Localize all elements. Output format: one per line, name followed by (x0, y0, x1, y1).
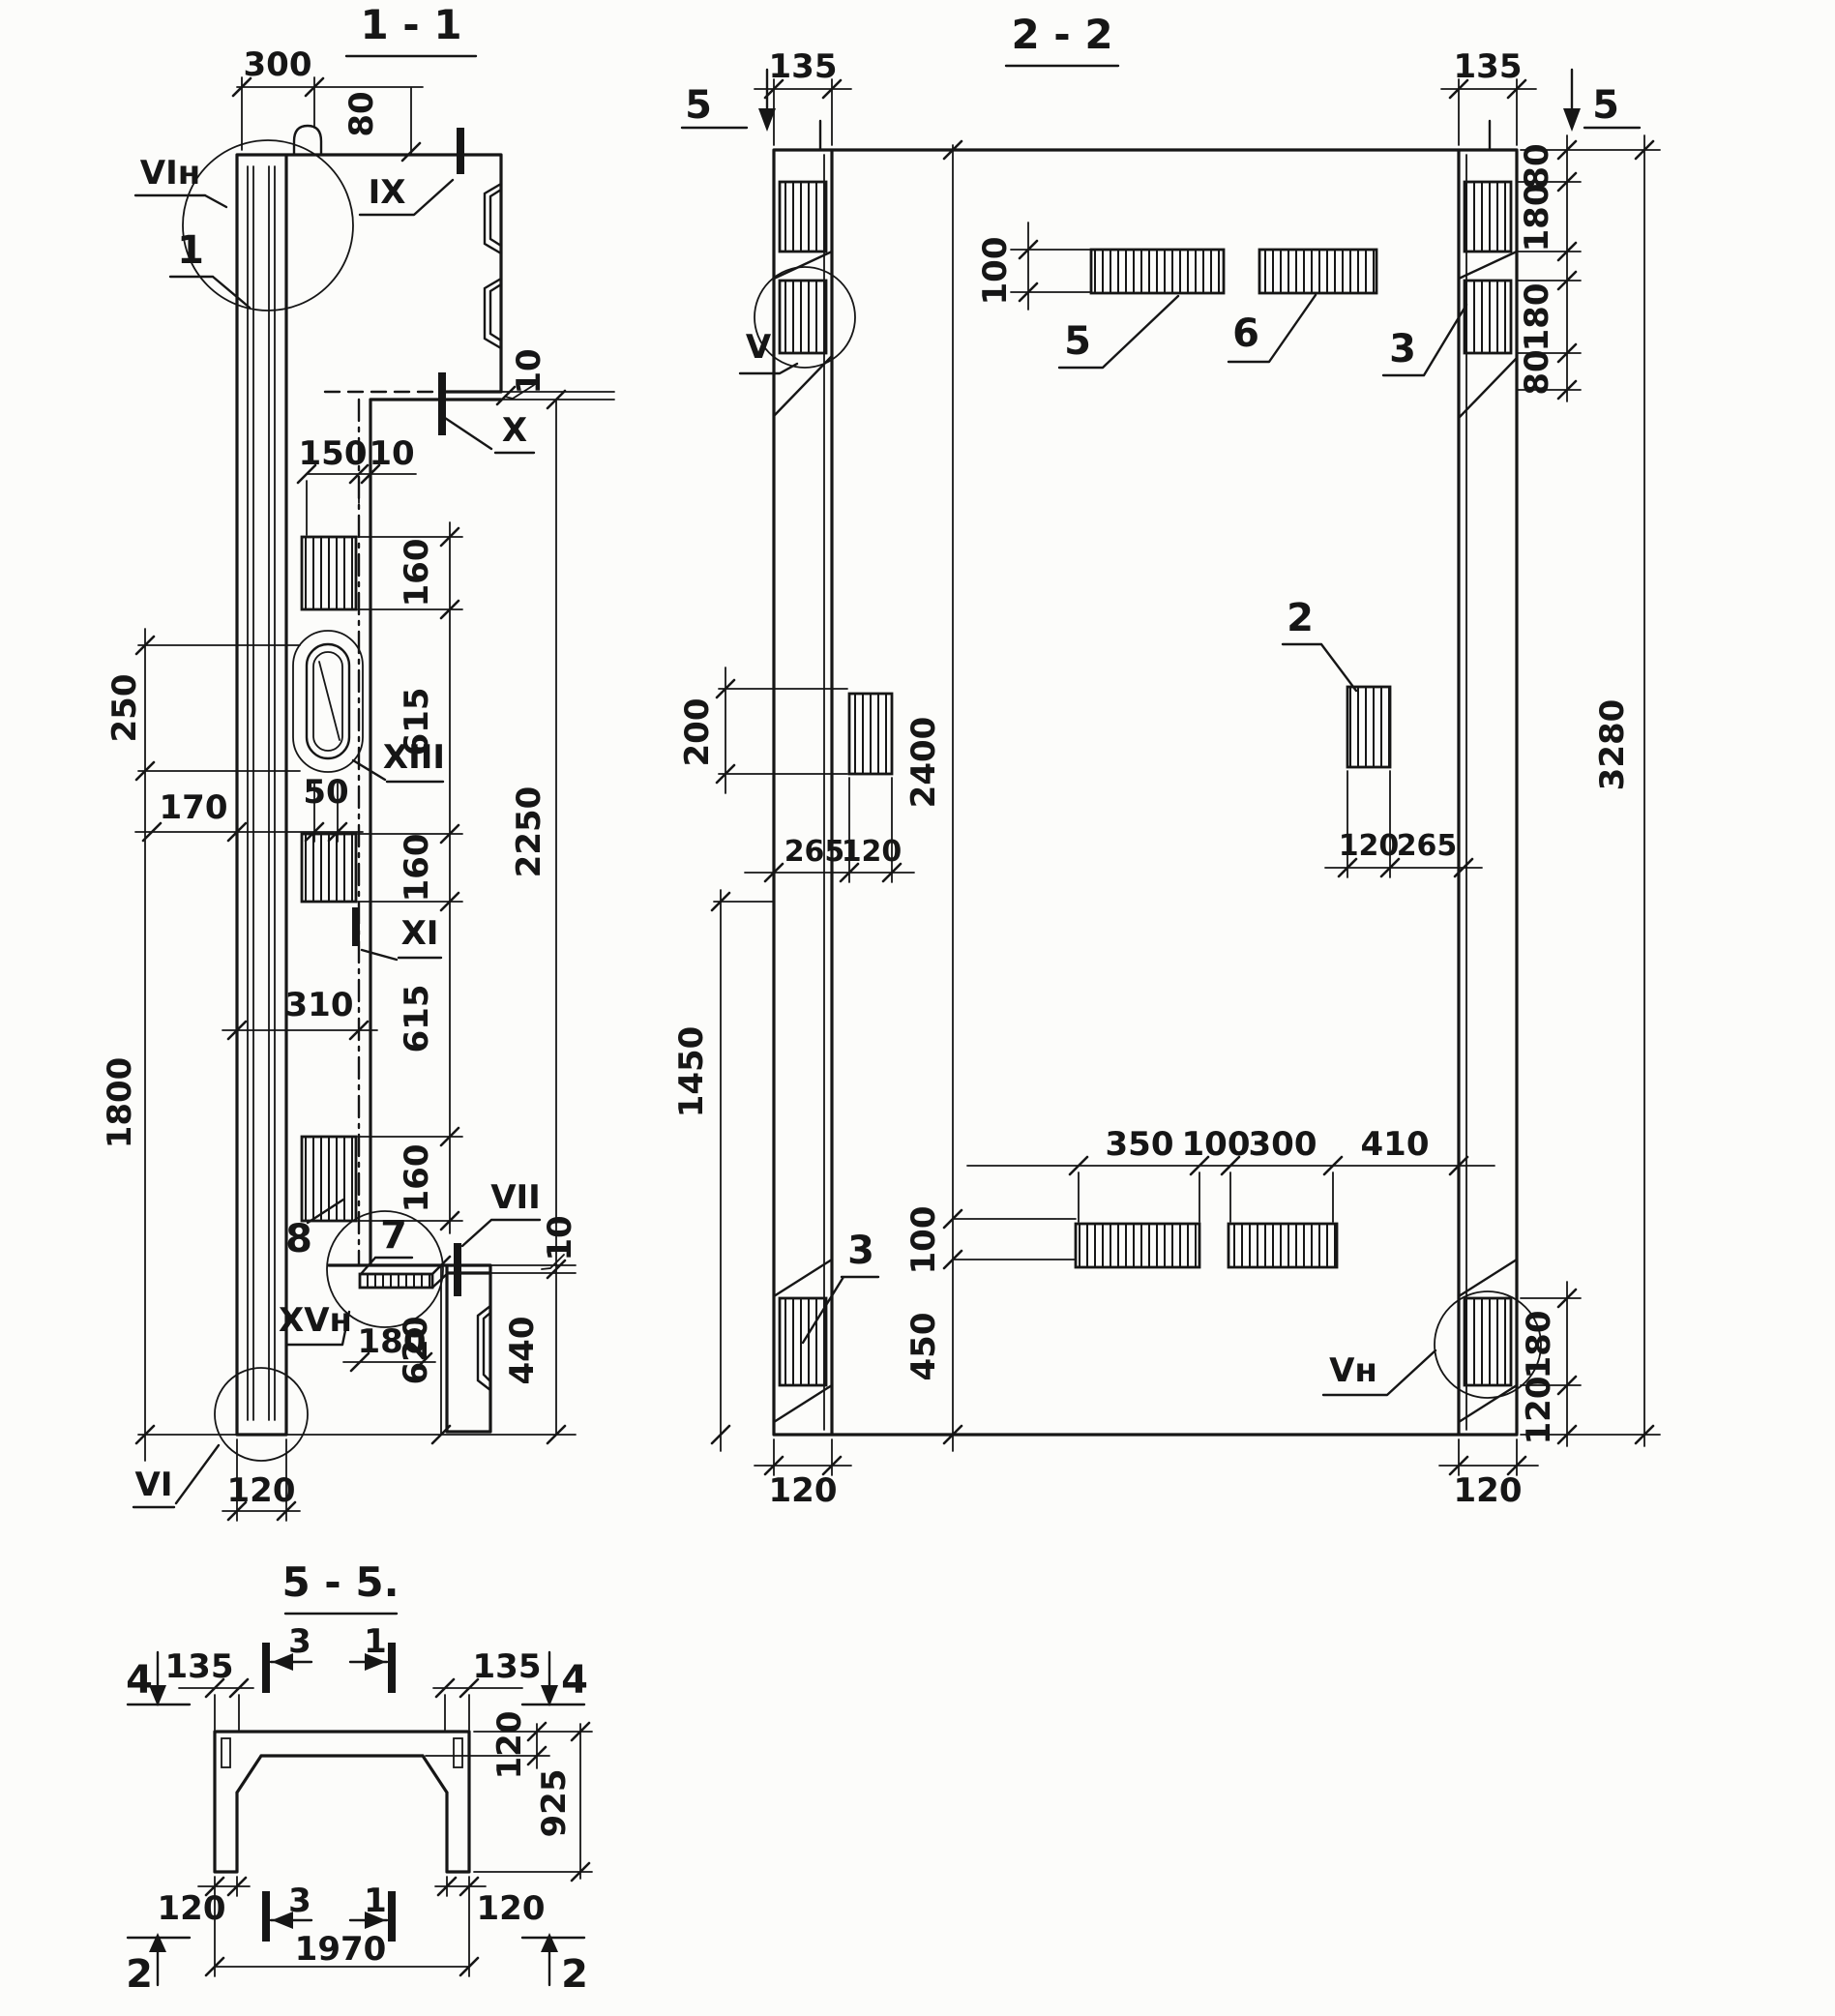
dim-2400: 2400 (904, 717, 943, 809)
dim-410: 410 (1361, 1125, 1430, 1164)
embed-plate (1347, 687, 1390, 767)
corner-embed (222, 1738, 230, 1767)
dim-440: 440 (503, 1317, 542, 1385)
dim-925: 925 (535, 1769, 574, 1838)
detail-circle-VI (215, 1368, 308, 1461)
dim-180: 180 (1518, 283, 1556, 352)
dim-620: 620 (397, 1317, 435, 1385)
label-6: 6 (1232, 311, 1259, 356)
rebar-ends (820, 121, 1490, 150)
cut-label-3: 3 (288, 1882, 311, 1920)
label-XI: XI (401, 914, 439, 953)
dim-350: 350 (1106, 1125, 1174, 1164)
label-VIn: VIн (140, 154, 200, 193)
cut-mark-2-left: 2 (126, 1933, 190, 1997)
dim-170: 170 (160, 788, 228, 827)
dim-200: 200 (678, 698, 717, 767)
embed-plate (302, 834, 356, 902)
label-VII: VII (490, 1178, 541, 1217)
dim-1800: 1800 (101, 1057, 139, 1149)
dim-120: 120 (1520, 1377, 1558, 1445)
dim-450: 450 (904, 1313, 943, 1381)
cut-label-5: 5 (1592, 83, 1619, 128)
cut-mark-5-left: 5 (682, 70, 776, 132)
embed-plate (1076, 1224, 1199, 1267)
dim-100: 100 (1182, 1125, 1251, 1164)
label-1: 1 (177, 228, 204, 273)
dim-135: 135 (1454, 47, 1523, 86)
dim-135: 135 (473, 1647, 542, 1686)
channel-outline (215, 1732, 469, 1872)
label-Vn: Vн (1329, 1351, 1377, 1390)
cut-label-5: 5 (685, 83, 712, 128)
embed-plate (1228, 1224, 1337, 1267)
label-VI: VI (135, 1466, 173, 1504)
label-3: 3 (847, 1229, 874, 1273)
rebar-lines (248, 166, 275, 1420)
dim-180: 180 (1518, 184, 1556, 252)
dim-80: 80 (1518, 349, 1556, 395)
label-XVn: XVн (279, 1301, 352, 1340)
cut-marks-3-1: 3 1 3 1 (266, 1622, 392, 1942)
dim-2250: 2250 (510, 786, 548, 878)
dim-120: 120 (1339, 829, 1400, 863)
embed-plate (780, 281, 826, 353)
embed-plate (849, 694, 892, 774)
dim-1450: 1450 (672, 1026, 711, 1118)
dim-80: 80 (342, 91, 381, 136)
cut-label-4: 4 (561, 1658, 588, 1703)
label-7: 7 (380, 1213, 407, 1258)
label-3: 3 (1389, 327, 1416, 371)
dim-180: 180 (1520, 1311, 1558, 1379)
dim-50: 50 (303, 773, 348, 812)
label-XIII: XIII (383, 738, 445, 777)
dim-100: 100 (904, 1206, 943, 1275)
section-2-2: 2 - 2 5 5 (672, 11, 1660, 1510)
dim-160: 160 (398, 539, 436, 608)
label-5: 5 (1064, 319, 1091, 364)
dim-100: 100 (976, 237, 1015, 306)
dim-265: 265 (1397, 829, 1458, 863)
cut-mark-2-right: 2 (522, 1933, 588, 1997)
dim-265: 265 (784, 835, 845, 869)
dim-615: 615 (398, 985, 436, 1053)
dim-135: 135 (165, 1647, 234, 1686)
embed-plate (1259, 250, 1376, 293)
dim-120: 120 (477, 1889, 546, 1928)
section-1-1: 1 - 1 300 80 (101, 1, 614, 1521)
label-X: X (502, 411, 527, 450)
dim-10-bottom: 10 (541, 1215, 579, 1260)
cut-mark-5-right: 5 (1563, 70, 1640, 132)
cut-label-3: 3 (288, 1622, 311, 1661)
engineering-drawing: 1 - 1 300 80 (0, 0, 1835, 2016)
cut-label-1: 1 (364, 1882, 387, 1920)
embed-plate (1091, 250, 1224, 293)
dim-10-plate: 10 (369, 434, 414, 473)
embed-plate (1465, 1298, 1511, 1385)
section-1-1-outline (237, 155, 501, 1435)
label-IX: IX (369, 173, 406, 212)
section-2-2-title: 2 - 2 (1011, 11, 1112, 58)
dim-120: 120 (842, 835, 903, 869)
embed-plate (1465, 182, 1511, 252)
section-5-5: 5 - 5. 3 1 3 1 4 4 (126, 1558, 592, 1997)
dim-310: 310 (285, 986, 354, 1024)
section-5-5-title: 5 - 5. (281, 1558, 399, 1606)
corner-embed (454, 1738, 462, 1767)
dim-160: 160 (398, 1144, 436, 1213)
dim-120: 120 (490, 1711, 529, 1780)
section-1-1-title: 1 - 1 (360, 1, 461, 48)
cut-label-2: 2 (126, 1952, 153, 1997)
dim-120: 120 (227, 1471, 296, 1510)
label-2: 2 (1287, 596, 1314, 640)
embed-plate (1465, 281, 1511, 353)
dim-150: 150 (299, 434, 368, 473)
cut-label-2: 2 (561, 1952, 588, 1997)
dim-120: 120 (158, 1889, 226, 1928)
label-V: V (746, 328, 772, 367)
dim-300: 300 (1249, 1125, 1317, 1164)
dim-120: 120 (769, 1471, 838, 1510)
dim-3280: 3280 (1593, 699, 1632, 791)
dim-160: 160 (398, 834, 436, 903)
cut-label-4: 4 (126, 1658, 153, 1703)
dim-80: 80 (1518, 143, 1556, 189)
dim-120: 120 (1454, 1471, 1523, 1510)
dim-1970: 1970 (295, 1930, 387, 1969)
dim-250: 250 (105, 674, 144, 743)
dim-300: 300 (244, 45, 312, 84)
blueprint-sheet: 1 - 1 300 80 (0, 0, 1835, 2016)
embed-plate (780, 182, 826, 252)
cut-label-1: 1 (364, 1622, 387, 1661)
embed-plate (302, 537, 356, 609)
dim-135: 135 (769, 47, 838, 86)
weld-band (360, 1274, 432, 1288)
detail-circle-VIn (183, 140, 353, 311)
